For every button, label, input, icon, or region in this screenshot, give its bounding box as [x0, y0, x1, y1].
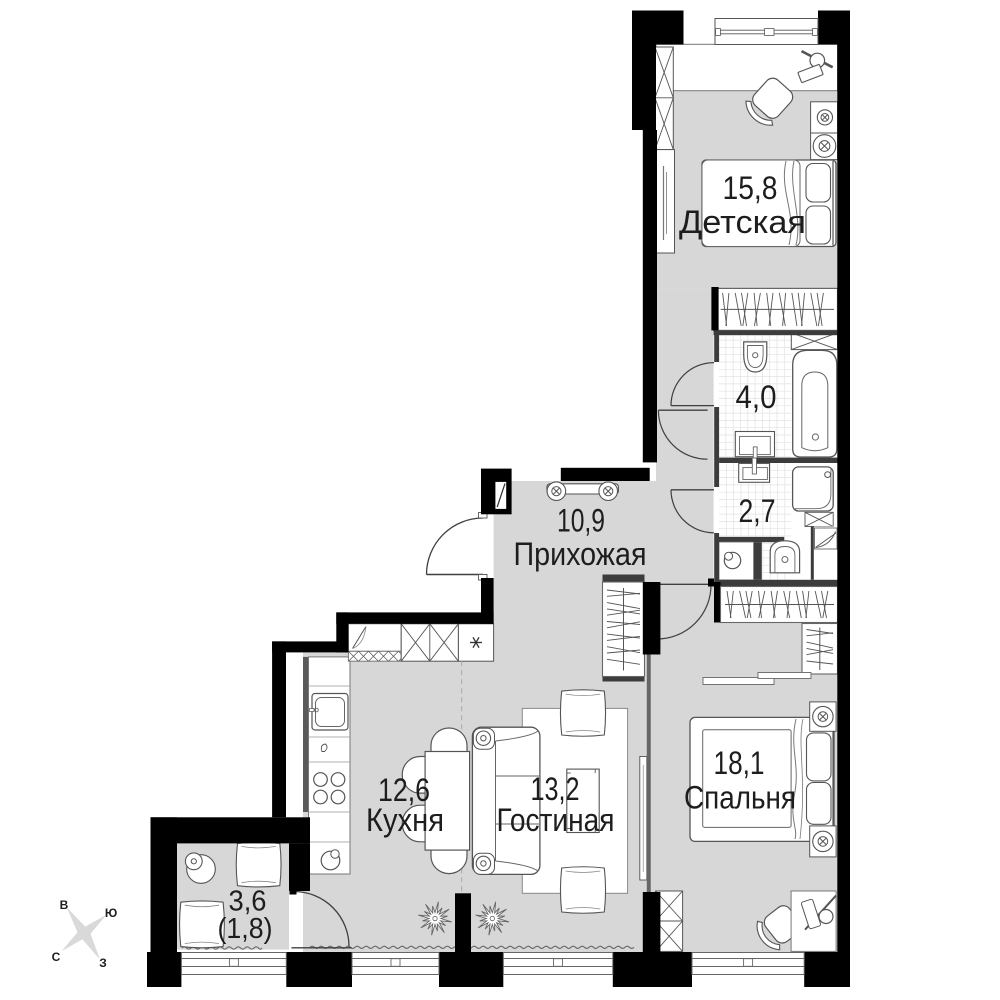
svg-text:15,8: 15,8 [723, 170, 778, 206]
svg-text:4,0: 4,0 [736, 379, 777, 415]
svg-text:Гостиная: Гостиная [497, 802, 615, 838]
svg-text:Детская: Детская [679, 204, 806, 240]
svg-text:Прихожая: Прихожая [514, 536, 647, 572]
svg-text:18,1: 18,1 [714, 745, 765, 781]
svg-text:(1,8): (1,8) [218, 913, 273, 945]
svg-text:Ю: Ю [105, 906, 117, 920]
svg-text:З: З [99, 956, 107, 970]
svg-text:10,9: 10,9 [557, 503, 605, 539]
svg-text:Спальня: Спальня [684, 780, 796, 816]
svg-text:Кухня: Кухня [366, 802, 444, 838]
svg-text:С: С [52, 950, 61, 964]
svg-text:2,7: 2,7 [739, 493, 776, 529]
svg-text:В: В [60, 898, 69, 912]
